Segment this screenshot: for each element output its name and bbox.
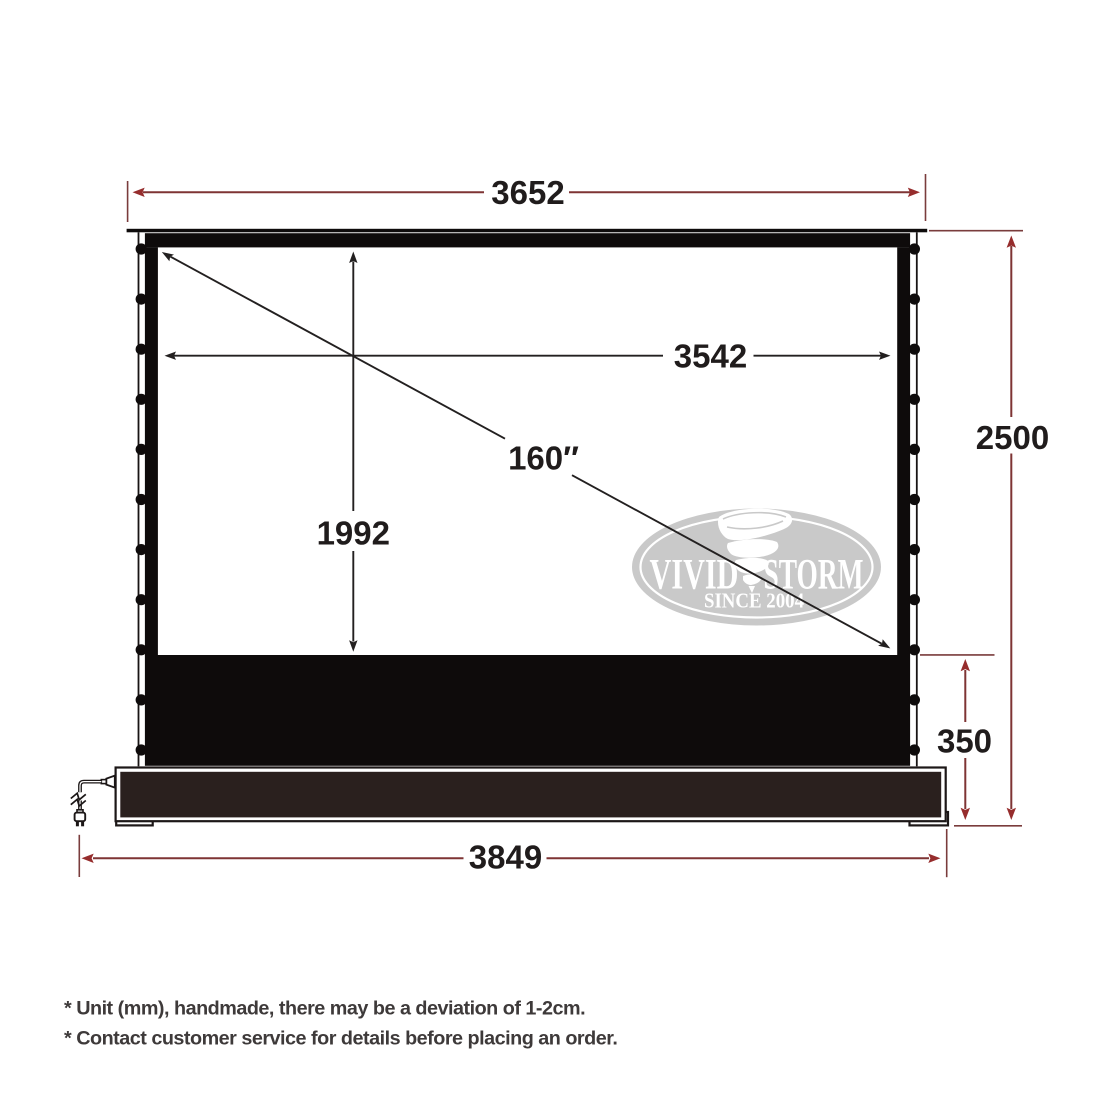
svg-text:3652: 3652 [491, 174, 564, 211]
svg-text:SINCE 2004: SINCE 2004 [704, 589, 804, 613]
svg-text:2500: 2500 [976, 419, 1049, 456]
svg-text:* Unit (mm), handmade, there m: * Unit (mm), handmade, there may be a de… [64, 998, 585, 1020]
svg-text:350: 350 [937, 723, 992, 760]
svg-text:1992: 1992 [317, 515, 390, 552]
svg-text:* Contact customer service for: * Contact customer service for details b… [64, 1028, 617, 1050]
svg-text:3542: 3542 [674, 338, 747, 375]
svg-text:160″: 160″ [508, 439, 579, 476]
svg-text:3849: 3849 [469, 839, 542, 876]
